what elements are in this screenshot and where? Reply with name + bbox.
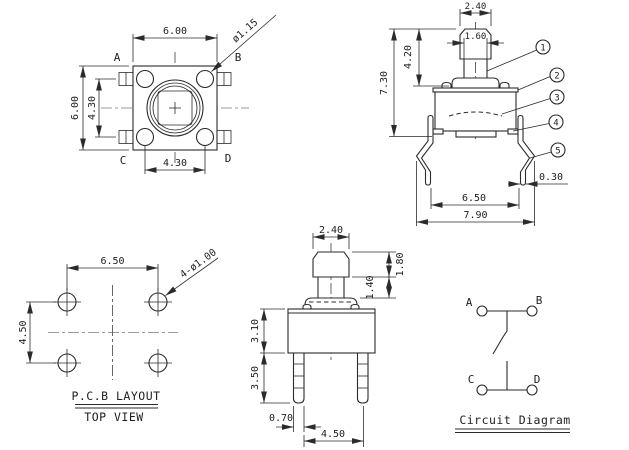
collar-foot-left — [303, 305, 311, 310]
dim-height-to-base-value: 4.20 — [403, 45, 414, 69]
terminal-label-a: A — [114, 51, 121, 64]
dim-lead-width-value: 0.70 — [269, 413, 293, 424]
dim-pin-spacing-v-value: 4.30 — [87, 96, 98, 120]
circuit-terminal-a: A — [466, 296, 473, 309]
dim-stem-height: 1.40 — [360, 275, 396, 299]
lead-left — [294, 353, 305, 403]
callout-4: 4 — [553, 119, 558, 129]
callout-3: 3 — [554, 94, 559, 104]
circuit-diagram-title: Circuit Diagram — [459, 413, 570, 427]
circuit-diagram: A B C D Circuit Diagram — [455, 294, 571, 433]
hole-bottom-left — [53, 349, 81, 377]
dim-actuator-dia: ø1.15 — [212, 15, 277, 72]
dim-stem-width: 1.60 — [447, 32, 504, 43]
dim-hole-spacing-h-value: 6.50 — [100, 256, 124, 267]
dim-height-to-base: 4.20 — [389, 29, 456, 86]
terminal-label-c: C — [120, 154, 127, 167]
pcb-layout-title: P.C.B LAYOUT — [71, 389, 160, 403]
terminal-a-node — [477, 306, 487, 316]
callout-5: 5 — [555, 147, 560, 157]
base-block-left — [433, 129, 443, 134]
front-view: 2.40 1.60 4.20 7.30 — [379, 2, 568, 226]
dim-actuator-dia-value: ø1.15 — [230, 17, 260, 45]
cover-plate — [433, 88, 518, 92]
pcb-layout-view: 6.50 4.50 4-ø1.00 P.C.B LAYOUT TOP VIEW — [18, 247, 219, 424]
terminal-label-d: D — [225, 152, 232, 165]
top-view: 6.00 ø1.15 6.00 4.30 — [70, 15, 276, 174]
dim-hole-callout-value: 4-ø1.00 — [178, 247, 219, 281]
terminal-b-node — [527, 306, 537, 316]
lead-right — [518, 116, 535, 186]
dim-cap-width-value: 2.40 — [465, 2, 487, 12]
terminal-label-b: B — [235, 51, 242, 64]
hole-bottom-right — [144, 349, 172, 377]
dim-body-width: 6.50 — [431, 188, 519, 209]
dim-lead-width: 0.70 — [269, 406, 321, 432]
dim-body-width-value: 6.50 — [462, 193, 486, 204]
lead-right — [358, 353, 369, 403]
collar-foot-right — [351, 305, 359, 310]
dim-body-height: 3.10 — [250, 309, 285, 353]
dim-lead-thickness: 0.30 — [508, 172, 568, 184]
switch-contact-arm — [493, 331, 507, 354]
dim-lead-spacing-value: 4.50 — [321, 429, 345, 440]
side-view: 2.40 1.80 1.40 3.10 — [250, 225, 406, 447]
switch-body — [288, 309, 375, 353]
dim-top-width-value: 6.00 — [163, 26, 187, 37]
dim-lead-length: 3.50 — [250, 353, 290, 403]
dim-lead-thickness-value: 0.30 — [539, 172, 563, 183]
drawing-canvas: 6.00 ø1.15 6.00 4.30 — [0, 0, 629, 450]
dim-lead-span-value: 7.90 — [463, 210, 487, 221]
actuator-button — [147, 80, 203, 136]
dim-stem-height-value: 1.40 — [365, 275, 376, 299]
lead-left — [417, 116, 434, 186]
dim-left-height-value: 6.00 — [70, 96, 81, 120]
base-center-block — [456, 131, 496, 137]
base-block-right — [508, 129, 518, 134]
dim-hole-callout: 4-ø1.00 — [165, 247, 218, 295]
dim-cap-height: 1.80 — [352, 252, 406, 277]
button-cap — [313, 252, 349, 277]
callout-1: 1 — [540, 44, 545, 54]
technical-drawing-sheet: 6.00 ø1.15 6.00 4.30 — [0, 0, 629, 450]
button-collar — [305, 298, 357, 309]
dim-body-height-value: 3.10 — [250, 319, 261, 343]
pcb-layout-subtitle: TOP VIEW — [84, 410, 143, 424]
terminal-c-node — [477, 385, 487, 395]
dim-total-height-value: 7.30 — [379, 71, 390, 95]
dim-lead-spacing: 4.50 — [304, 406, 364, 447]
callout-2: 2 — [554, 72, 559, 82]
circuit-terminal-c: C — [468, 373, 475, 386]
dim-hole-spacing-v-value: 4.50 — [18, 320, 29, 344]
terminal-d-node — [527, 385, 537, 395]
collar-foot-right — [500, 83, 509, 89]
collar-foot-left — [442, 83, 451, 89]
circuit-terminal-b: B — [536, 294, 543, 307]
circuit-terminal-d: D — [534, 373, 541, 386]
hole-top-left — [53, 288, 81, 316]
dim-stem-width-value: 1.60 — [465, 32, 487, 42]
dim-cap-height-value: 1.80 — [395, 252, 406, 276]
dim-cap-width-value: 2.40 — [319, 225, 343, 236]
button-collar — [452, 78, 499, 88]
dim-pin-spacing-h-value: 4.30 — [163, 158, 187, 169]
dim-lead-length-value: 3.50 — [250, 366, 261, 390]
hole-top-right — [144, 288, 172, 316]
